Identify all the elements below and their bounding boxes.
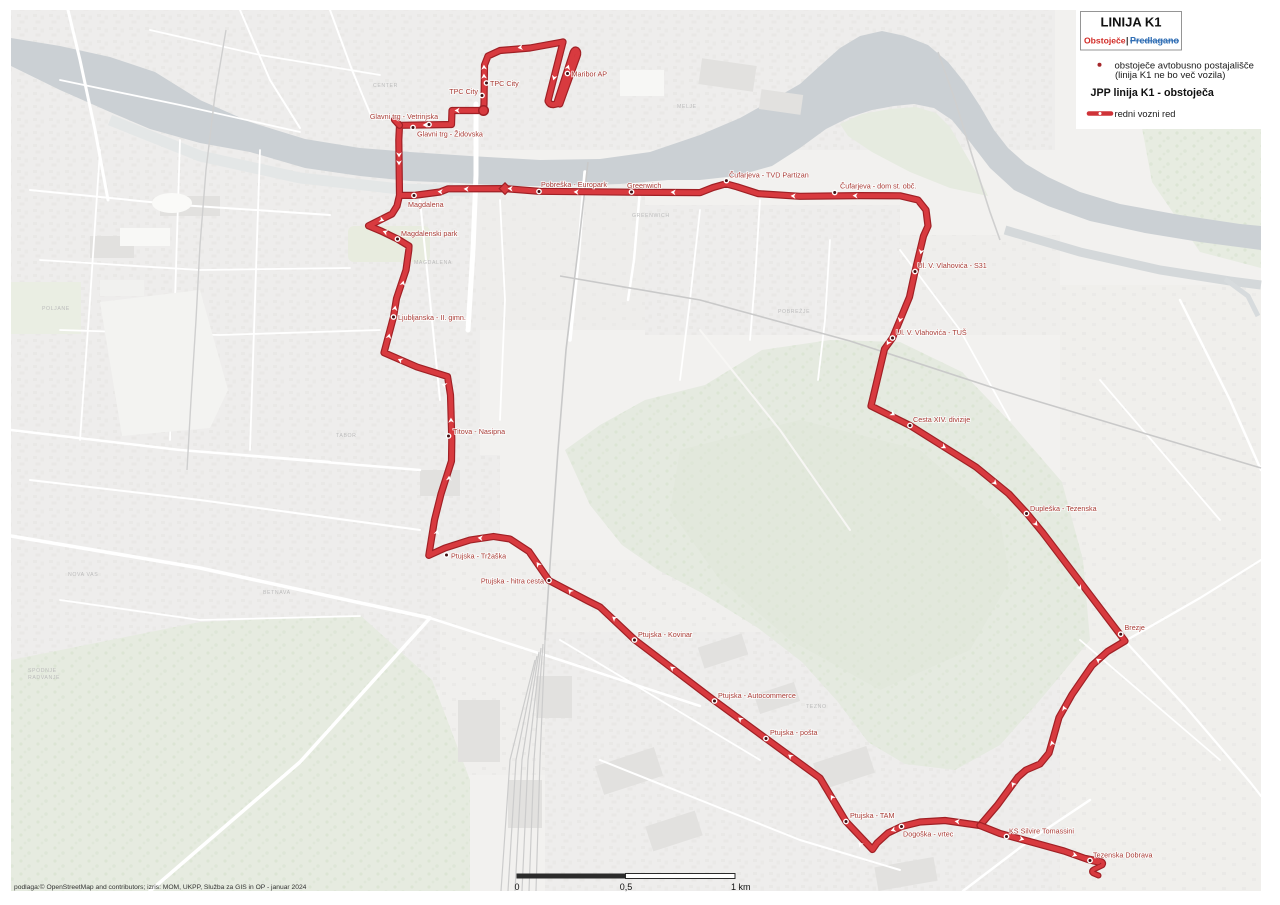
- svg-text:MAGDALENA: MAGDALENA: [414, 260, 452, 266]
- svg-text:Ptujska - Autocommerce: Ptujska - Autocommerce: [718, 691, 796, 700]
- svg-text:redni vozni red: redni vozni red: [1115, 109, 1176, 119]
- svg-text:Titova - Nasipna: Titova - Nasipna: [453, 427, 505, 436]
- svg-text:Maribor AP: Maribor AP: [572, 70, 608, 79]
- svg-text:Glavni trg - Židovska: Glavni trg - Židovska: [417, 130, 483, 139]
- svg-text:POLJANE: POLJANE: [42, 306, 70, 312]
- svg-text:Ptujska - Kovinar: Ptujska - Kovinar: [638, 630, 693, 639]
- svg-text:Čufarjeva - dom st. obč.: Čufarjeva - dom st. obč.: [840, 182, 916, 191]
- svg-text:Ul. V. Vlahovića - S31: Ul. V. Vlahovića - S31: [918, 261, 987, 270]
- svg-text:GREENWICH: GREENWICH: [632, 213, 670, 219]
- svg-text:SPODNJE: SPODNJE: [28, 668, 57, 674]
- svg-text:Obstoječe: Obstoječe: [1084, 36, 1126, 46]
- svg-text:|: |: [1126, 36, 1129, 46]
- svg-text:POBREŽJE: POBREŽJE: [778, 307, 810, 315]
- svg-text:Dogoška - vrtec: Dogoška - vrtec: [903, 830, 954, 839]
- svg-text:Brezje: Brezje: [1125, 623, 1145, 632]
- svg-text:1 km: 1 km: [731, 882, 751, 892]
- svg-text:Glavni trg - Vetrinjska: Glavni trg - Vetrinjska: [370, 112, 438, 121]
- svg-text:Magdalena: Magdalena: [408, 200, 444, 209]
- svg-text:TABOR: TABOR: [336, 433, 356, 439]
- svg-text:MELJE: MELJE: [677, 104, 697, 110]
- svg-text:Pobreška - Europark: Pobreška - Europark: [541, 180, 607, 189]
- svg-text:Magdalenski park: Magdalenski park: [401, 229, 458, 238]
- svg-text:TEZNO: TEZNO: [806, 704, 827, 710]
- svg-text:CENTER: CENTER: [373, 83, 398, 89]
- svg-text:BETNAVA: BETNAVA: [263, 590, 291, 596]
- svg-text:KS Silvire Tomassini: KS Silvire Tomassini: [1009, 827, 1074, 836]
- svg-text:NOVA VAS: NOVA VAS: [68, 572, 98, 578]
- svg-text:0: 0: [514, 882, 519, 892]
- svg-text:Tezenska Dobrava: Tezenska Dobrava: [1093, 851, 1153, 860]
- svg-text:Ptujska - pošta: Ptujska - pošta: [770, 728, 818, 737]
- svg-text:LINIJA K1: LINIJA K1: [1101, 15, 1162, 30]
- svg-text:RADVANJE: RADVANJE: [28, 675, 60, 681]
- svg-text:Ljubljanska - II. gimn.: Ljubljanska - II. gimn.: [398, 313, 466, 322]
- svg-text:0,5: 0,5: [620, 882, 633, 892]
- svg-text:TPC City: TPC City: [449, 87, 478, 96]
- svg-text:Ul. V. Vlahovića - TUŠ: Ul. V. Vlahovića - TUŠ: [896, 328, 967, 337]
- svg-text:Dupleška - Tezenska: Dupleška - Tezenska: [1030, 504, 1097, 513]
- svg-text:Greenwich: Greenwich: [627, 181, 661, 190]
- svg-text:TPC City: TPC City: [490, 79, 519, 88]
- svg-text:Predlagano: Predlagano: [1130, 36, 1180, 46]
- svg-text:JPP linija K1 - obstoječa: JPP linija K1 - obstoječa: [1091, 87, 1215, 99]
- svg-text:Cesta XIV. divizije: Cesta XIV. divizije: [913, 415, 970, 424]
- svg-text:Ptujska - TAM: Ptujska - TAM: [850, 811, 894, 820]
- svg-text:Ptujska - hitra cesta: Ptujska - hitra cesta: [481, 577, 544, 586]
- svg-text:Ptujska - Tržaška: Ptujska - Tržaška: [451, 552, 506, 561]
- svg-text:Čufarjeva - TVD Partizan: Čufarjeva - TVD Partizan: [729, 171, 809, 180]
- svg-text:(linija K1 ne bo več vozila): (linija K1 ne bo več vozila): [1115, 70, 1225, 81]
- svg-text:podlaga:© OpenStreetMap and co: podlaga:© OpenStreetMap and contributors…: [14, 883, 307, 891]
